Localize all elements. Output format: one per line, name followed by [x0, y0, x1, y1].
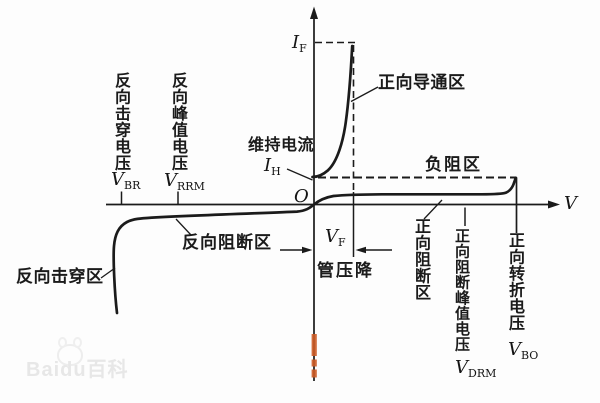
vbo-name-column: 正向转折电压	[506, 232, 522, 331]
holding-current-pointer-line	[287, 169, 313, 180]
vbo-symbol: VBO	[508, 341, 538, 360]
orange-mark-2	[312, 360, 317, 367]
ih-axis-symbol: IH	[264, 155, 281, 177]
forward-blocking-column: 正向阻断区	[412, 218, 428, 301]
reverse-blocking-label: 反向阻断区	[182, 234, 272, 252]
vf-dimension-right-arrow-icon	[302, 247, 313, 253]
vdrm-symbol: VDRM	[455, 359, 496, 378]
reverse-breakdown-label: 反向击穿区	[16, 268, 104, 286]
negative-resistance-label: 负阻区	[425, 156, 482, 174]
vbr-name-column: 反向击穿电压	[112, 72, 128, 171]
tube-voltage-drop-label: 管压降	[317, 262, 374, 280]
origin-label: O	[294, 186, 309, 208]
forward-conduction-label: 正向导通区	[378, 74, 466, 92]
vf-symbol: VF	[325, 228, 346, 247]
orange-mark-3	[312, 370, 317, 378]
forward-conduction-curve	[313, 46, 353, 177]
vdrm-name-column: 正向阻断峰值电压	[454, 228, 469, 352]
x-axis-arrow-icon	[548, 201, 560, 209]
vrrm-symbol: VRRM	[164, 172, 205, 191]
y-axis-arrow-icon	[310, 7, 318, 20]
orange-mark-1	[312, 334, 317, 356]
holding-current-label: 维持电流	[248, 138, 314, 155]
vf-dimension-left-arrow-icon	[356, 247, 367, 253]
forward-blocking-pointer-line	[424, 200, 442, 219]
vrrm-name-column: 反向峰值电压	[169, 72, 185, 171]
watermark: Baidu百科	[26, 353, 129, 382]
forward-conduction-pointer-line	[351, 87, 378, 102]
thyristor-vi-characteristic-diagram: IF IH O V 维持电流 正向导通区 负阻区 反向阻断区 反向击穿区 管压降…	[0, 0, 600, 403]
if-axis-symbol: IF	[292, 32, 307, 54]
vbr-symbol: VBR	[111, 171, 140, 190]
x-axis-label: V	[564, 193, 577, 215]
